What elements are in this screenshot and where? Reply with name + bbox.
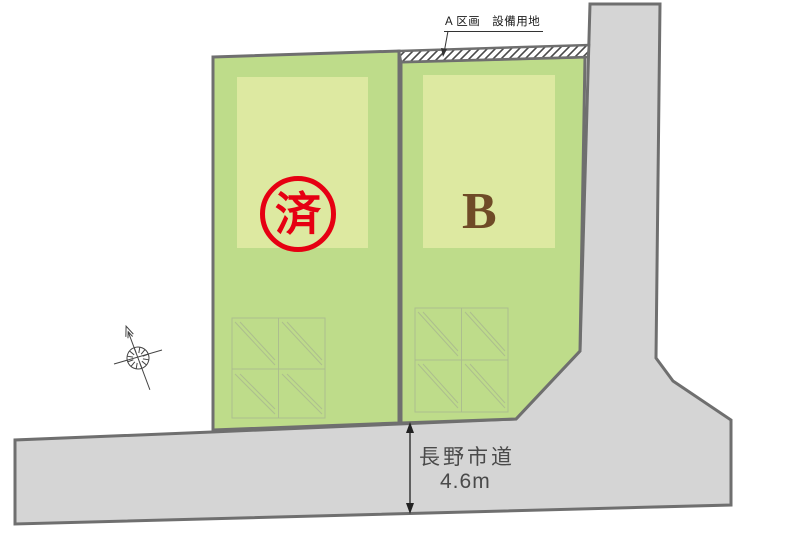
equipment-strip-label: A 区画 設備用地 bbox=[444, 13, 543, 32]
site-plan: A 区画 設備用地 済 B 長野市道 4.6m bbox=[0, 0, 800, 533]
site-plan-drawing bbox=[0, 0, 800, 533]
north-compass-icon bbox=[114, 322, 162, 393]
sold-stamp: 済 bbox=[260, 176, 336, 252]
road-name-label: 長野市道 bbox=[419, 441, 515, 471]
road-width-label: 4.6m bbox=[440, 470, 491, 494]
plot-b-label: B bbox=[462, 186, 497, 238]
sold-stamp-text: 済 bbox=[275, 191, 321, 237]
